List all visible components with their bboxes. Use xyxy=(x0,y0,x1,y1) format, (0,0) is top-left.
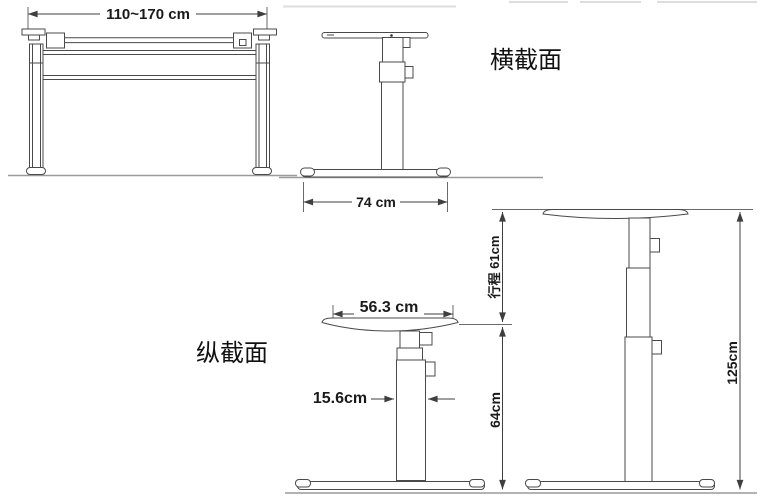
side-view-diagram: 74 cm xyxy=(301,33,451,213)
front-frame xyxy=(22,29,277,175)
max-height-dimension: 125cm xyxy=(724,212,740,490)
travel-stroke-dimension: 行程 61cm xyxy=(487,212,503,322)
raised-side-view-diagram: 行程 61cm 64cm 125cm xyxy=(487,210,753,490)
base-depth-dimension-text: 74 cm xyxy=(356,194,396,210)
column-width-dimension: 15.6cm xyxy=(313,390,455,407)
max-height-dimension-text: 125cm xyxy=(724,341,740,385)
scan-artifact-lines xyxy=(283,2,757,7)
travel-stroke-dimension-text: 行程 61cm xyxy=(487,236,502,300)
cross-section-label: 横截面 xyxy=(490,47,562,74)
width-range-dimension: 110~170 cm xyxy=(28,6,267,33)
diagram-canvas: 110~170 cm xyxy=(0,0,760,500)
tabletop-depth-dimension-text: 56.3 cm xyxy=(360,299,419,316)
width-range-dimension-text: 110~170 cm xyxy=(106,6,190,23)
lowered-side-view-diagram: 56.3 cm 15.6cm xyxy=(296,299,513,490)
front-view-diagram: 110~170 cm xyxy=(22,6,277,175)
column-width-dimension-text: 15.6cm xyxy=(313,390,367,407)
base-depth-dimension: 74 cm xyxy=(304,182,448,212)
longitudinal-section-label: 纵截面 xyxy=(196,340,268,367)
desk-dimension-figure: 110~170 cm xyxy=(0,0,760,500)
side-frame xyxy=(301,33,451,178)
raised-frame xyxy=(526,210,715,490)
min-height-dimension-text: 64cm xyxy=(487,392,503,428)
min-height-dimension: 64cm xyxy=(487,327,503,490)
